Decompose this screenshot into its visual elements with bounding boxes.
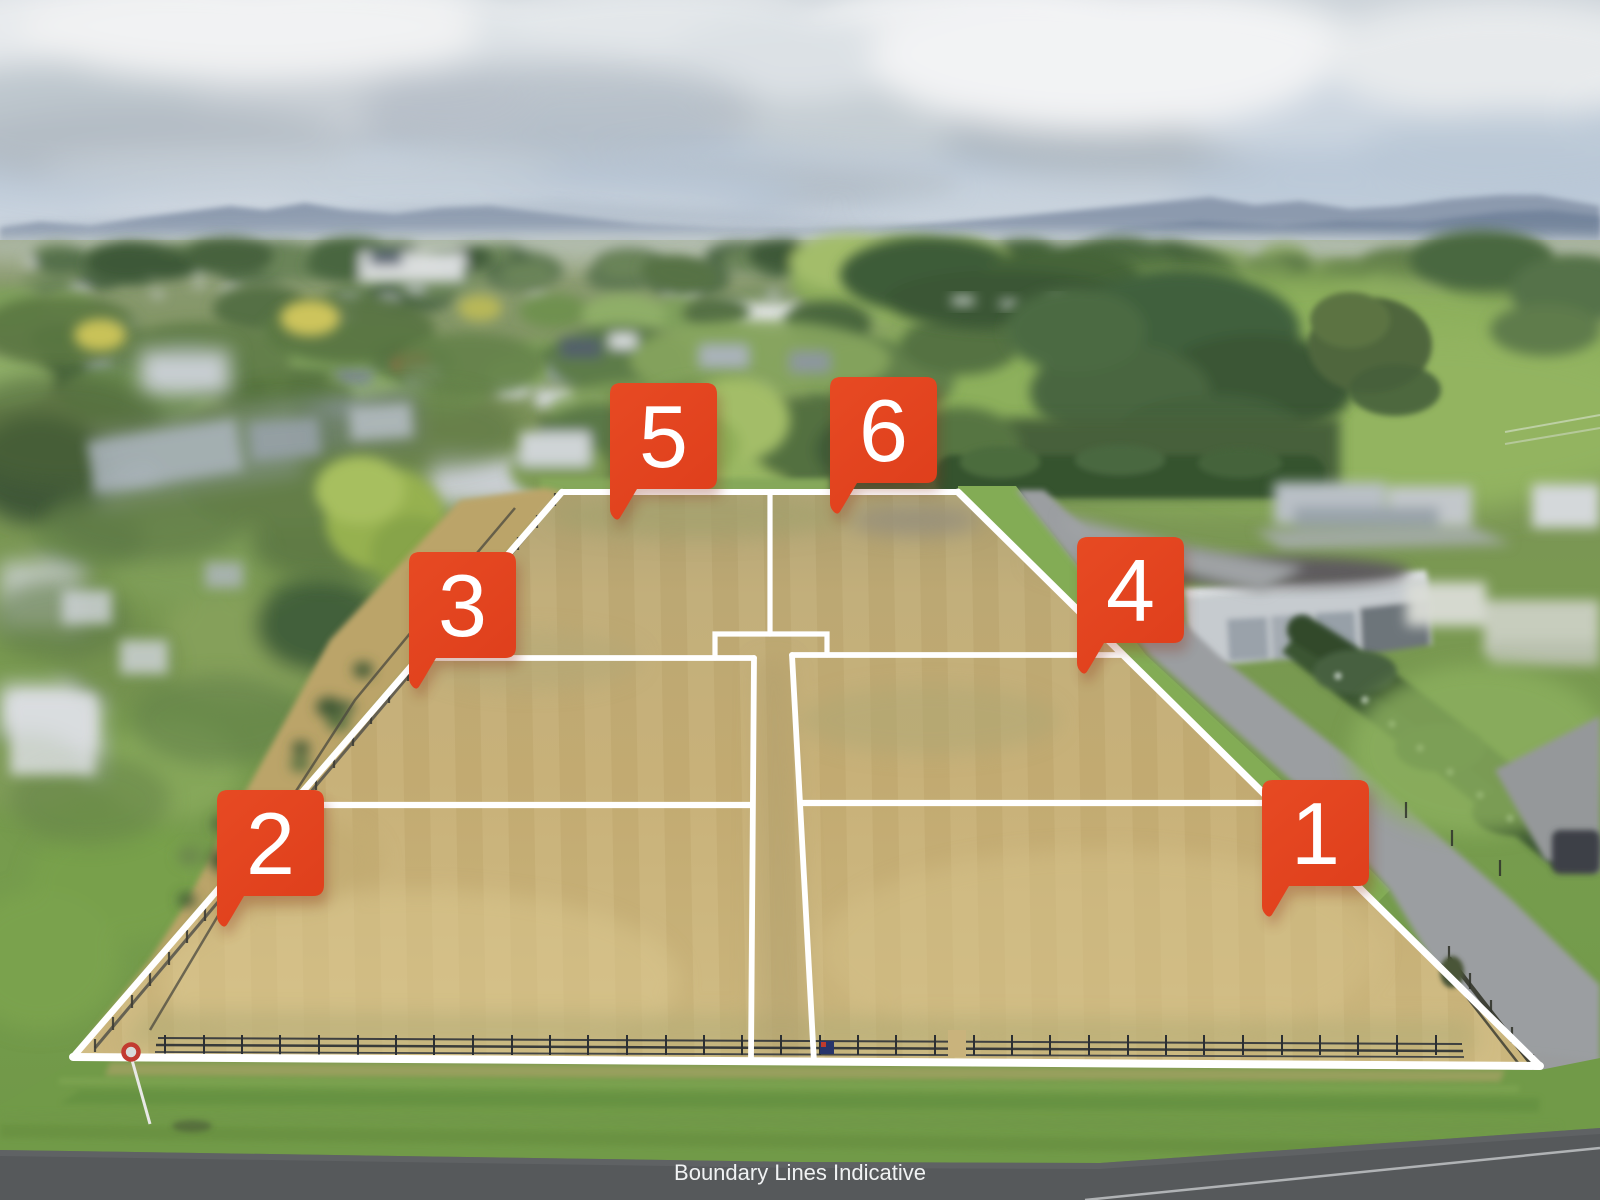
- svg-text:1: 1: [1291, 784, 1340, 883]
- svg-text:2: 2: [246, 794, 295, 893]
- svg-text:3: 3: [438, 556, 487, 655]
- svg-text:Boundary Lines Indicative: Boundary Lines Indicative: [674, 1160, 926, 1185]
- svg-text:6: 6: [859, 381, 908, 480]
- svg-text:5: 5: [639, 387, 688, 486]
- svg-text:4: 4: [1106, 541, 1155, 640]
